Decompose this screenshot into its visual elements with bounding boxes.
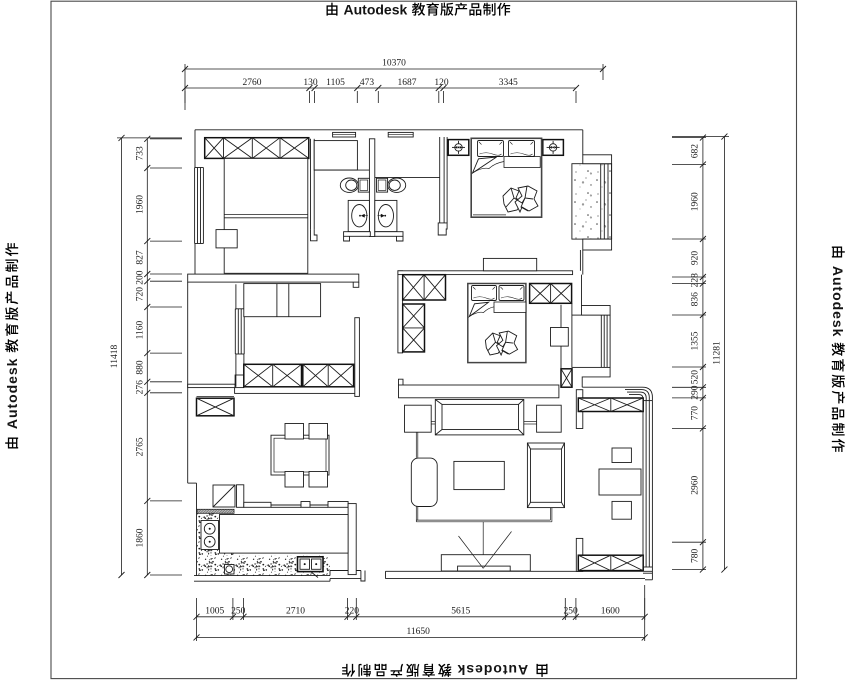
svg-text:920: 920 — [691, 251, 701, 266]
svg-text:880: 880 — [136, 360, 146, 375]
svg-text:11418: 11418 — [110, 345, 120, 369]
svg-text:473: 473 — [360, 78, 375, 88]
svg-text:733: 733 — [136, 146, 146, 161]
svg-text:2765: 2765 — [136, 437, 146, 456]
svg-text:11650: 11650 — [406, 627, 430, 637]
svg-text:250: 250 — [231, 607, 246, 617]
svg-text:Autodesk: Autodesk — [457, 662, 529, 678]
svg-text:1860: 1860 — [136, 528, 146, 547]
svg-text:2960: 2960 — [691, 476, 701, 495]
svg-text:2710: 2710 — [286, 607, 305, 617]
svg-text:Autodesk: Autodesk — [830, 266, 846, 338]
svg-text:250: 250 — [563, 607, 578, 617]
svg-text:290: 290 — [691, 385, 701, 400]
svg-text:1960: 1960 — [691, 192, 701, 211]
svg-text:770: 770 — [691, 406, 701, 421]
svg-text:1687: 1687 — [398, 78, 417, 88]
svg-text:Autodesk: Autodesk — [4, 358, 20, 430]
svg-text:5615: 5615 — [451, 607, 470, 617]
svg-text:1960: 1960 — [136, 195, 146, 214]
svg-text:1355: 1355 — [691, 331, 701, 350]
svg-text:130: 130 — [303, 78, 318, 88]
svg-text:520: 520 — [691, 370, 701, 385]
svg-text:827: 827 — [136, 250, 146, 265]
svg-text:2760: 2760 — [243, 78, 262, 88]
svg-text:220: 220 — [345, 607, 360, 617]
svg-text:3345: 3345 — [499, 78, 518, 88]
svg-text:10370: 10370 — [382, 59, 406, 69]
svg-text:200: 200 — [136, 270, 146, 285]
svg-text:836: 836 — [691, 292, 701, 307]
svg-text:276: 276 — [136, 380, 146, 395]
svg-text:1105: 1105 — [326, 78, 345, 88]
svg-text:11281: 11281 — [713, 341, 723, 365]
svg-text:780: 780 — [691, 549, 701, 564]
svg-text:1005: 1005 — [205, 607, 224, 617]
svg-text:682: 682 — [691, 144, 701, 159]
svg-text:1600: 1600 — [601, 607, 620, 617]
svg-text:120: 120 — [434, 78, 449, 88]
svg-text:1160: 1160 — [136, 320, 146, 339]
svg-text:228: 228 — [691, 273, 701, 288]
svg-text:Autodesk: Autodesk — [344, 2, 408, 18]
svg-text:720: 720 — [136, 287, 146, 302]
